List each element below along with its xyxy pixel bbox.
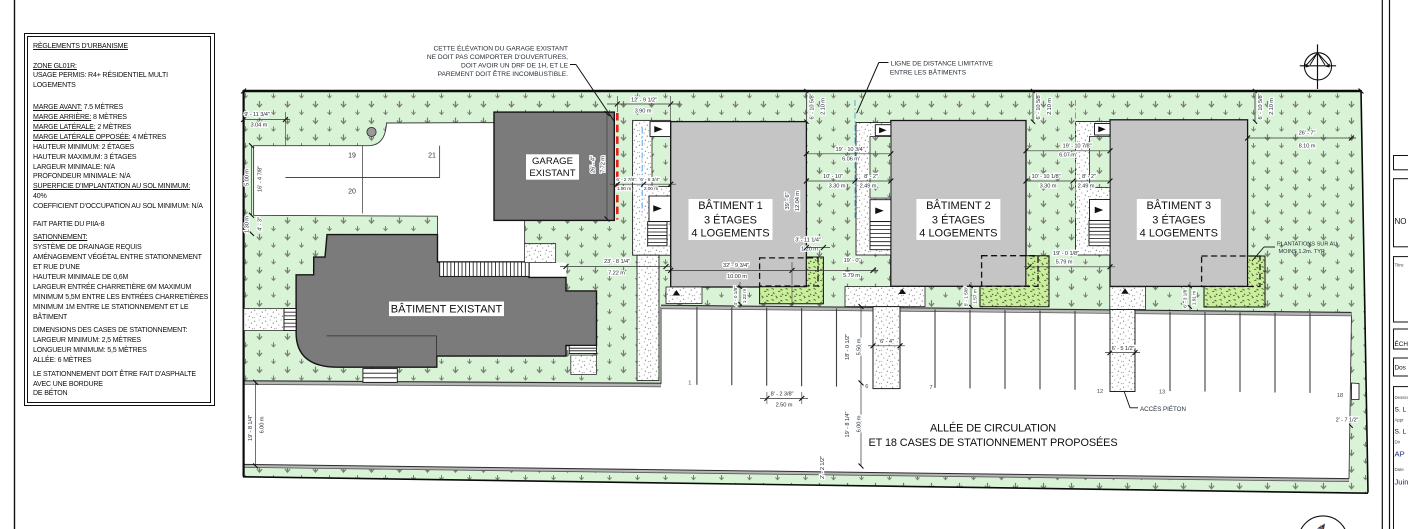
svg-text:6' - 2 7/8": 6' - 2 7/8" <box>616 177 636 183</box>
svg-text:6.00 m: 6.00 m <box>857 415 863 432</box>
svg-text:3 ÉTAGES: 3 ÉTAGES <box>704 214 757 227</box>
svg-text:PLANTATIONS SUR AU: PLANTATIONS SUR AU <box>1277 242 1337 248</box>
svg-text:1.30 m: 1.30 m <box>244 216 250 233</box>
svg-text:Date: Date <box>1395 467 1405 472</box>
svg-text:3.30 m: 3.30 m <box>829 183 846 189</box>
svg-text:3.04 m: 3.04 m <box>251 123 268 129</box>
svg-text:10.00 m: 10.00 m <box>727 274 747 280</box>
svg-text:6: 6 <box>865 384 868 390</box>
svg-text:PAREMENT DOIT ÊTRE INCOMBUSTIB: PAREMENT DOIT ÊTRE INCOMBUSTIBLE. <box>438 69 569 78</box>
svg-text:S. L: S. L <box>1395 429 1407 436</box>
svg-text:2.50 m: 2.50 m <box>776 403 793 409</box>
svg-text:Juin: Juin <box>1395 478 1408 487</box>
svg-text:6.06 m': 6.06 m' <box>842 156 860 162</box>
svg-text:BÂTIMENT 1: BÂTIMENT 1 <box>698 199 763 212</box>
svg-text:5.50 m: 5.50 m <box>857 338 863 355</box>
svg-text:1.91 m: 1.91 m <box>1192 291 1198 305</box>
svg-text:BÂTIMENT 2: BÂTIMENT 2 <box>926 199 991 212</box>
svg-text:ACCÈS PIÉTON: ACCÈS PIÉTON <box>1140 406 1186 413</box>
svg-text:5.79 m: 5.79 m <box>1056 260 1073 266</box>
svg-text:8' - 2": 8' - 2" <box>864 174 878 180</box>
svg-text:10' - 10": 10' - 10" <box>823 174 843 180</box>
svg-text:AP: AP <box>1395 450 1405 459</box>
svg-text:12.04 m: 12.04 m <box>795 191 801 211</box>
svg-text:32' - 9 3/4": 32' - 9 3/4" <box>723 263 749 269</box>
svg-text:5' - 1 5/8": 5' - 1 5/8" <box>964 286 970 306</box>
svg-text:7.72 m: 7.72 m <box>601 156 607 173</box>
svg-text:5.79 m: 5.79 m <box>843 273 860 279</box>
svg-text:6' - 4": 6' - 4" <box>880 339 894 345</box>
svg-text:2.49 m: 2.49 m <box>860 183 877 189</box>
svg-text:39' - 6": 39' - 6" <box>785 193 791 210</box>
svg-text:4' - 0 1/8": 4' - 0 1/8" <box>733 286 739 306</box>
svg-text:1.57 m: 1.57 m <box>973 289 979 303</box>
svg-text:19' - 8 1/4": 19' - 8 1/4" <box>845 411 851 437</box>
svg-text:2.10 m: 2.10 m <box>1047 98 1053 115</box>
svg-text:3.30 m: 3.30 m <box>1040 183 1057 189</box>
svg-text:4' - 3": 4' - 3" <box>258 217 264 231</box>
svg-text:ALLÉE DE CIRCULATION: ALLÉE DE CIRCULATION <box>930 422 1056 435</box>
svg-text:23' - 8 1/4": 23' - 8 1/4" <box>604 259 630 265</box>
svg-text:2.10 m: 2.10 m <box>820 98 826 115</box>
svg-text:8.10 m: 8.10 m <box>1299 143 1316 149</box>
svg-text:LIGNE DE DISTANCE LIMITATIVE: LIGNE DE DISTANCE LIMITATIVE <box>891 60 994 67</box>
svg-text:18' - 0 1/2": 18' - 0 1/2" <box>845 334 851 360</box>
svg-text:13: 13 <box>1159 390 1165 396</box>
svg-text:10' - 10 1/8": 10' - 10 1/8" <box>1032 174 1061 180</box>
svg-text:6.07 m': 6.07 m' <box>1059 152 1077 158</box>
svg-text:19' - 10 3/4": 19' - 10 3/4" <box>836 147 865 153</box>
svg-text:MOINS 1.2m. TYP.: MOINS 1.2m. TYP. <box>1279 249 1326 255</box>
svg-text:Titre: Titre <box>1395 263 1404 268</box>
svg-text:4 LOGEMENTS: 4 LOGEMENTS <box>919 228 997 240</box>
svg-text:26' - 4": 26' - 4" <box>591 156 597 173</box>
svg-text:19' - 8 1/4": 19' - 8 1/4" <box>248 415 254 441</box>
svg-text:DOIT AVOIR UN DRF DE 1H, ET LE: DOIT AVOIR UN DRF DE 1H, ET LE <box>461 63 569 70</box>
svg-text:BÂTIMENT 3: BÂTIMENT 3 <box>1147 199 1212 212</box>
svg-text:6' - 10 5/8": 6' - 10 5/8" <box>1036 93 1042 119</box>
svg-text:ENTRE LES BÂTIMENTS: ENTRE LES BÂTIMENTS <box>890 68 967 77</box>
svg-text:1.90 m: 1.90 m <box>617 186 631 192</box>
svg-text:7.22 m: 7.22 m <box>608 270 625 276</box>
svg-text:Dos: Dos <box>1395 365 1406 372</box>
svg-text:Dessin: Dessin <box>1395 395 1408 400</box>
svg-text:Appr: Appr <box>1395 418 1405 423</box>
svg-text:19: 19 <box>348 153 356 160</box>
svg-text:Dir: Dir <box>1395 440 1401 445</box>
svg-text:8' - 2 3/8": 8' - 2 3/8" <box>771 392 794 398</box>
svg-text:18: 18 <box>1337 393 1343 399</box>
svg-text:S. L: S. L <box>1395 407 1407 414</box>
svg-text:2.00 m: 2.00 m <box>644 186 658 192</box>
svg-text:NE DOIT PAS COMPORTER D'OUVERT: NE DOIT PAS COMPORTER D'OUVERTURES, <box>427 54 568 61</box>
svg-text:6.00 m: 6.00 m <box>260 416 266 433</box>
svg-text:12' - 9 1/2": 12' - 9 1/2" <box>631 98 657 104</box>
svg-text:4 LOGEMENTS: 4 LOGEMENTS <box>691 228 769 240</box>
svg-text:1: 1 <box>688 380 691 386</box>
svg-text:21: 21 <box>428 153 436 160</box>
svg-text:EXISTANT: EXISTANT <box>529 168 575 179</box>
svg-text:6' - 10 5/8": 6' - 10 5/8" <box>809 93 815 119</box>
svg-text:6' - 5 1/2": 6' - 5 1/2" <box>1112 346 1135 352</box>
svg-text:8' - 2": 8' - 2" <box>1082 174 1096 180</box>
svg-text:19' - 0 1/8": 19' - 0 1/8" <box>1053 251 1079 257</box>
svg-text:7: 7 <box>929 385 932 391</box>
svg-text:ET 18 CASES DE STATIONNEMENT P: ET 18 CASES DE STATIONNEMENT PROPOSÉES <box>869 436 1118 449</box>
svg-text:6' - 3 1/8": 6' - 3 1/8" <box>1183 288 1189 308</box>
svg-text:20: 20 <box>348 189 356 196</box>
svg-text:2.49 m: 2.49 m <box>1078 183 1095 189</box>
svg-text:CETTE ÉLÉVATION DU GARAGE EXIS: CETTE ÉLÉVATION DU GARAGE EXISTANT <box>434 44 568 53</box>
svg-text:2' - 2 1/2": 2' - 2 1/2" <box>820 456 826 479</box>
svg-text:NO: NO <box>1395 217 1407 226</box>
svg-text:6' - 6 3/4": 6' - 6 3/4" <box>640 177 660 183</box>
svg-text:9' - 11 3/4": 9' - 11 3/4" <box>244 112 270 118</box>
svg-text:19' - 0": 19' - 0" <box>844 258 861 264</box>
svg-text:ÉCH: ÉCH <box>1395 339 1408 348</box>
svg-text:12: 12 <box>1097 389 1103 395</box>
svg-text:3' - 11 1/4": 3' - 11 1/4" <box>795 237 821 243</box>
svg-text:4 LOGEMENTS: 4 LOGEMENTS <box>1140 228 1218 240</box>
svg-text:6' - 10 5/8": 6' - 10 5/8" <box>1258 93 1264 119</box>
svg-text:19' - 10 7/8": 19' - 10 7/8" <box>1063 144 1092 150</box>
svg-text:2' - 7 1/2": 2' - 7 1/2" <box>1336 417 1359 423</box>
svg-text:2.10 m: 2.10 m <box>1269 98 1275 115</box>
svg-text:26' - 7": 26' - 7" <box>1299 130 1316 136</box>
svg-text:GARAGE: GARAGE <box>532 156 573 167</box>
svg-text:3.90 m: 3.90 m <box>635 109 652 115</box>
svg-text:BÂTIMENT EXISTANT: BÂTIMENT EXISTANT <box>391 303 503 316</box>
svg-text:5.00 m: 5.00 m <box>244 169 250 186</box>
svg-text:3 ÉTAGES: 3 ÉTAGES <box>1152 214 1205 227</box>
svg-text:1.22 m: 1.22 m <box>742 289 748 303</box>
svg-text:16' - 4 7/8": 16' - 4 7/8" <box>258 166 264 192</box>
svg-text:3 ÉTAGES: 3 ÉTAGES <box>932 214 985 227</box>
